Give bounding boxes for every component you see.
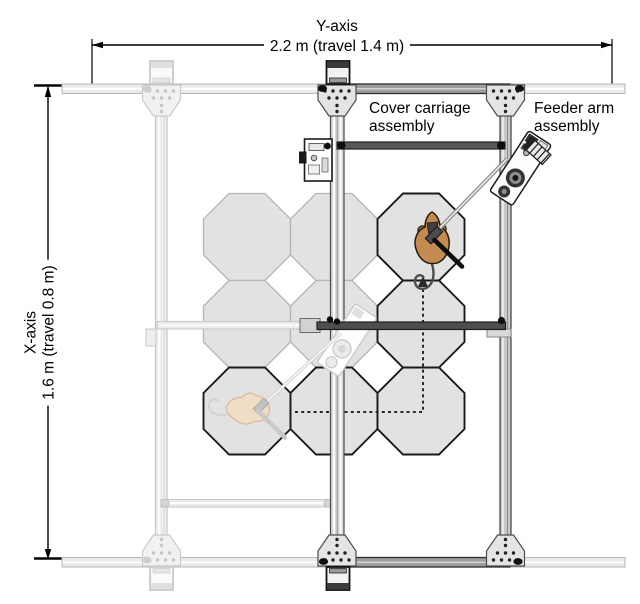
diagram-canvas [0, 0, 640, 604]
x-axis-label: X-axis [23, 265, 41, 399]
cover-drive-unit [299, 139, 332, 181]
diagram-page: Y-axis 2.2 m (travel 1.4 m) X-axis 1.6 m… [0, 0, 640, 604]
ghost-cover-bracket [146, 329, 156, 346]
x-axis-label-block: X-axis 1.6 m (travel 0.8 m) [2, 60, 78, 604]
y-axis-dimension-row: 2.2 m (travel 1.4 m) [237, 38, 437, 56]
x-axis-dimension: 1.6 m (travel 0.8 m) [40, 265, 58, 399]
maze-tile-inactive [204, 194, 291, 281]
frame-crossbar [299, 139, 505, 181]
cover-carriage-label: Cover carriage assembly [369, 100, 471, 135]
y-axis-dimension: 2.2 m (travel 1.4 m) [264, 38, 410, 56]
y-axis-label: Y-axis [237, 18, 437, 36]
feeder-arm-label: Feeder arm assembly [534, 100, 614, 135]
